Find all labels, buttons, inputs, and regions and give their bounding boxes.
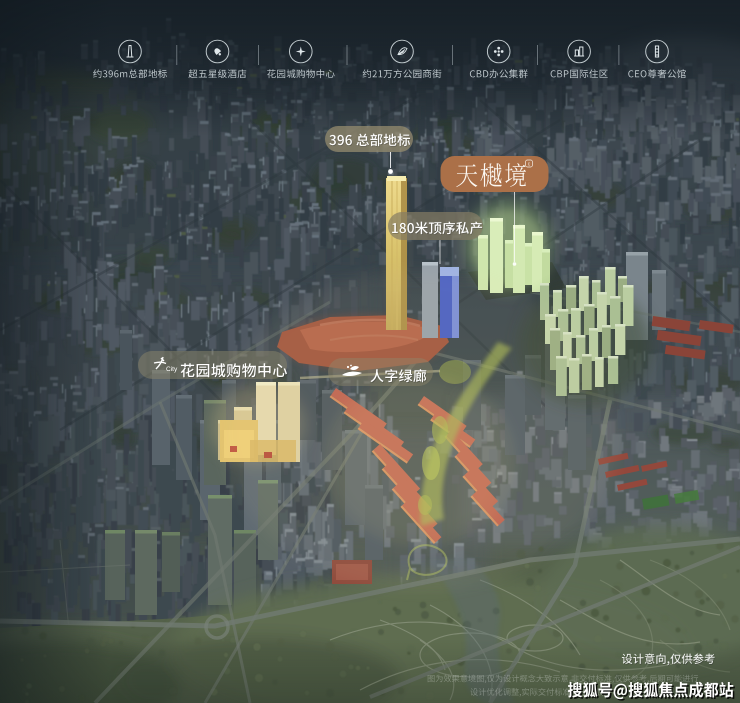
- svg-text:City: City: [166, 366, 178, 373]
